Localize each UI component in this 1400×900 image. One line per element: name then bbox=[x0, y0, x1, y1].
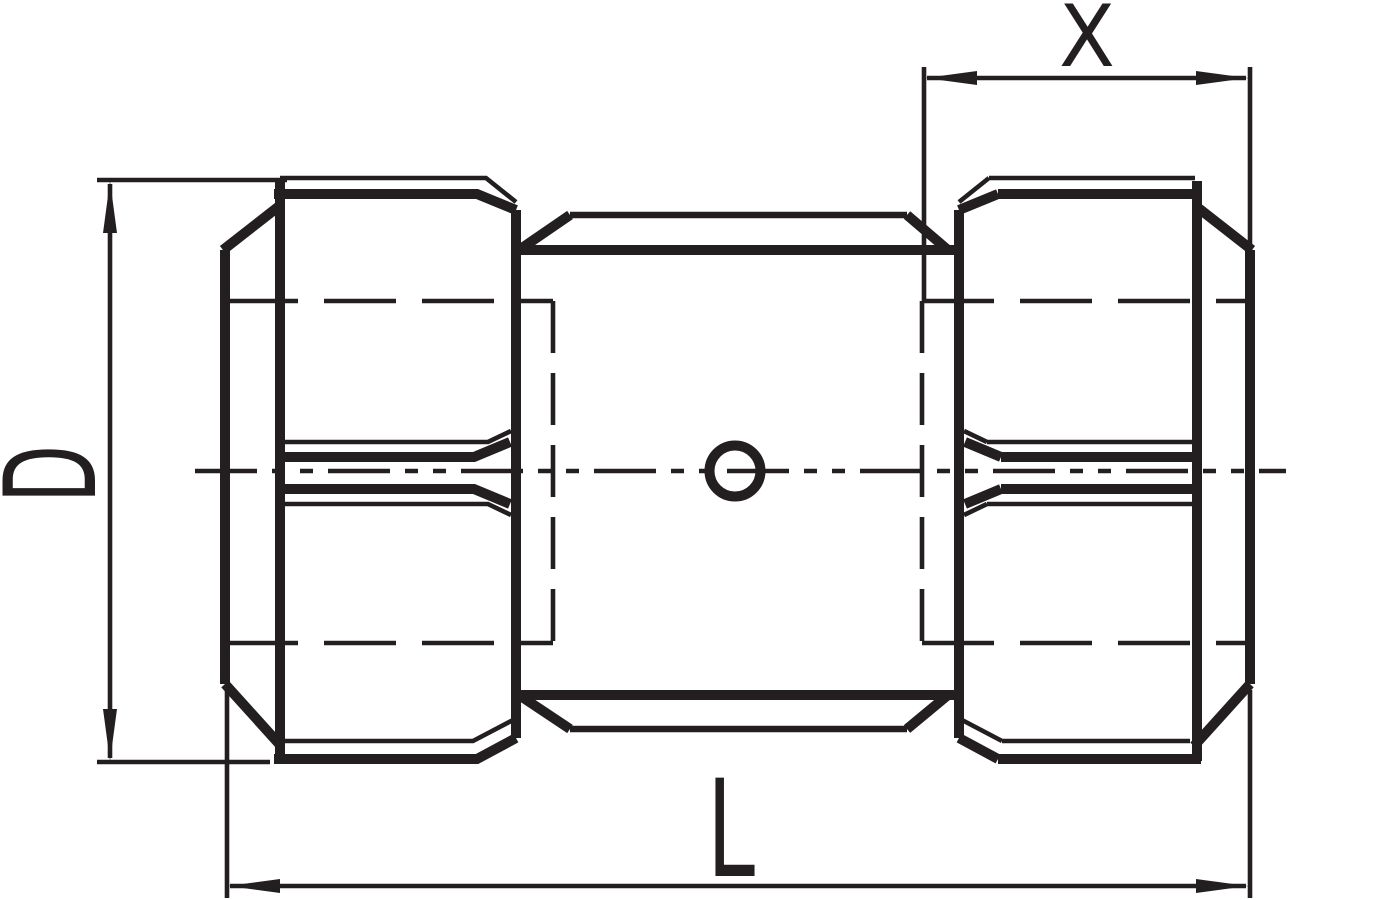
dimension-L-label: L bbox=[707, 751, 755, 900]
dimension-X-arrow-left bbox=[925, 71, 977, 85]
technical-drawing: D L X bbox=[0, 0, 1400, 900]
dimension-D-extension-lines bbox=[97, 180, 287, 762]
dimension-D-label: D bbox=[0, 445, 125, 503]
dimension-D-arrow-down bbox=[103, 709, 117, 761]
dimension-L: L bbox=[227, 690, 1250, 900]
dimension-D-arrow-up bbox=[103, 181, 117, 233]
dimension-L-arrow-left bbox=[228, 879, 280, 893]
dimension-L-arrow-right bbox=[1196, 879, 1248, 893]
dimension-X-label: X bbox=[1059, 0, 1115, 87]
dimension-X-arrow-right bbox=[1196, 71, 1248, 85]
